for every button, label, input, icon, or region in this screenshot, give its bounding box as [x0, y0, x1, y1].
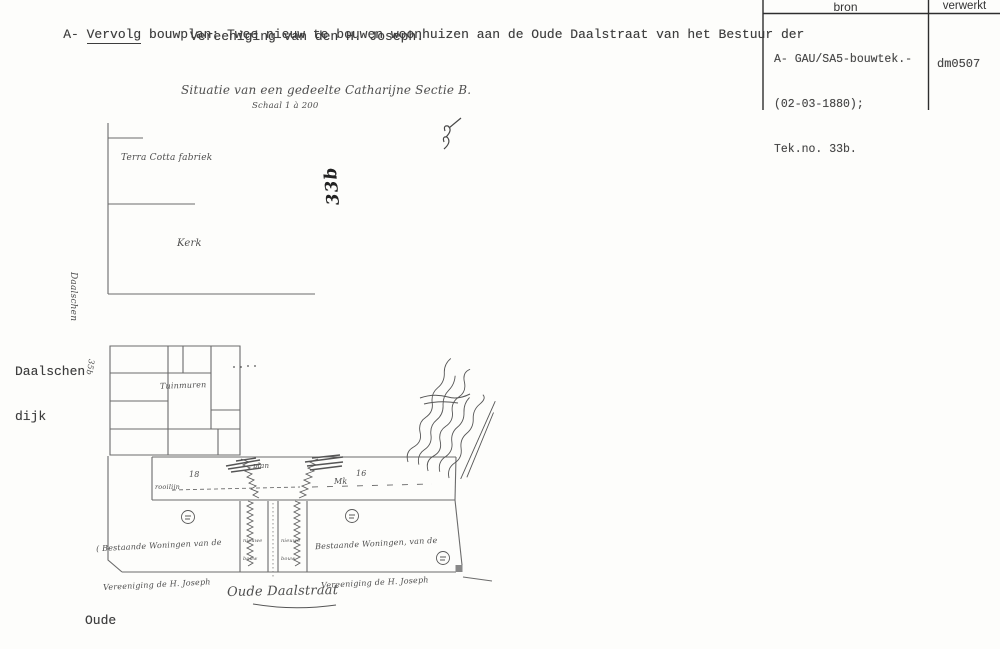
kerk-label: Kerk	[177, 238, 202, 249]
heading-underlined-word: Vervolg	[87, 27, 142, 44]
verwerkt-cell: dm0507	[937, 57, 980, 71]
typed-label-line: Oude	[85, 613, 163, 628]
strip-right-line: nieuwe	[281, 538, 300, 544]
card-heading-line2: Vereeniging van den H. Joseph.	[190, 29, 424, 44]
bron-line: Tek.no. 33b.	[774, 142, 912, 157]
bron-line: A- GAU/SA5-bouwtek.-	[774, 52, 912, 67]
plan-title: Situatie van een gedeelte Catharijne Sec…	[181, 83, 471, 97]
paraaf-marks	[443, 118, 461, 149]
street-name-handwritten: Oude Daalstraat	[227, 583, 338, 600]
band-note-right: 16	[356, 469, 367, 478]
strip-left-line: nieuwe	[243, 538, 262, 544]
right-dwellings-annotation: Bestaande Woningen, van de Vereeniging d…	[313, 508, 441, 618]
heading-prefix: A-	[63, 27, 86, 42]
bron-cell: A- GAU/SA5-bouwtek.- (02-03-1880); Tek.n…	[774, 22, 912, 187]
bron-line: (02-03-1880);	[774, 97, 912, 112]
strip-right-label: nieuwe bouw	[281, 526, 300, 574]
corner-marker-square	[456, 565, 463, 572]
right-dwellings-line: Bestaande Woningen, van de	[315, 534, 438, 553]
daalschen-vertical-label: Daalschen	[68, 272, 78, 321]
mk-note: Mk	[334, 477, 347, 486]
typed-label-oude-daalstraat: Oude Daalstraat	[85, 583, 163, 649]
table-header-bron: bron	[763, 0, 928, 14]
typed-label-daalschen-dijk: Daalschen dijk	[15, 334, 85, 454]
band-note-middle: plan	[253, 462, 269, 470]
grid-plot-label: Tuinmuren	[160, 380, 207, 391]
typed-label-line: Daalschen	[15, 364, 85, 379]
rooilijn-dashed-line	[172, 484, 432, 490]
plan-upper-block-lines	[108, 123, 315, 294]
scanned-archive-card: A- Vervolg bouwplan: Twee nieuw te bouwe…	[0, 0, 1000, 649]
typed-label-line: dijk	[15, 409, 85, 424]
terra-cotta-label: Terra Cotta fabriek	[121, 153, 212, 163]
plan-plot-grid-lines	[110, 346, 240, 455]
drawing-number-33b: 33b	[321, 166, 344, 206]
right-dwellings-line: Vereeniging de H. Joseph	[321, 573, 440, 592]
left-dwellings-line: ( Bestaande Woningen van de	[96, 536, 222, 556]
strip-right-line: bouw	[281, 556, 300, 562]
survey-dots	[233, 365, 256, 368]
band-note-left: 18	[189, 470, 200, 479]
table-header-verwerkt: verwerkt	[929, 0, 1000, 12]
strip-left-label: nieuwe bouw	[243, 526, 262, 574]
strip-left-line: bouw	[243, 556, 262, 562]
plan-scale: Schaal 1 à 200	[252, 101, 319, 111]
rooilijn-note: rooilijn	[155, 483, 180, 491]
